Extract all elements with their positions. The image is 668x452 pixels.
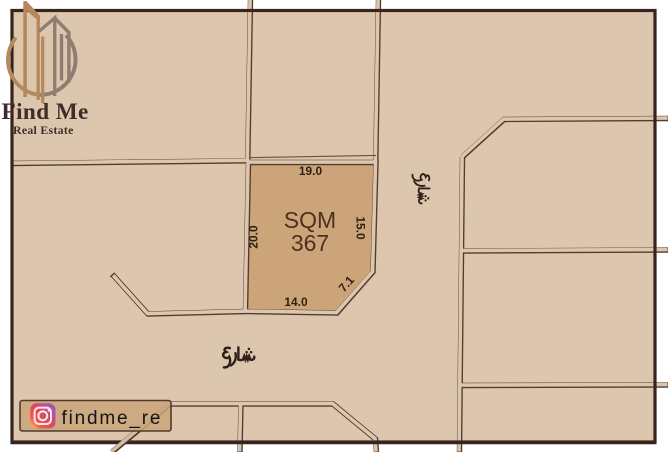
svg-text:19.0: 19.0: [299, 164, 323, 178]
svg-text:Real Estate: Real Estate: [13, 123, 74, 137]
svg-text:367: 367: [291, 230, 329, 256]
svg-text:20.0: 20.0: [247, 225, 261, 249]
svg-text:14.0: 14.0: [284, 295, 308, 309]
svg-text:findme_re: findme_re: [62, 408, 163, 429]
svg-text:15.0: 15.0: [353, 216, 367, 240]
svg-text:Find Me: Find Me: [2, 99, 89, 125]
